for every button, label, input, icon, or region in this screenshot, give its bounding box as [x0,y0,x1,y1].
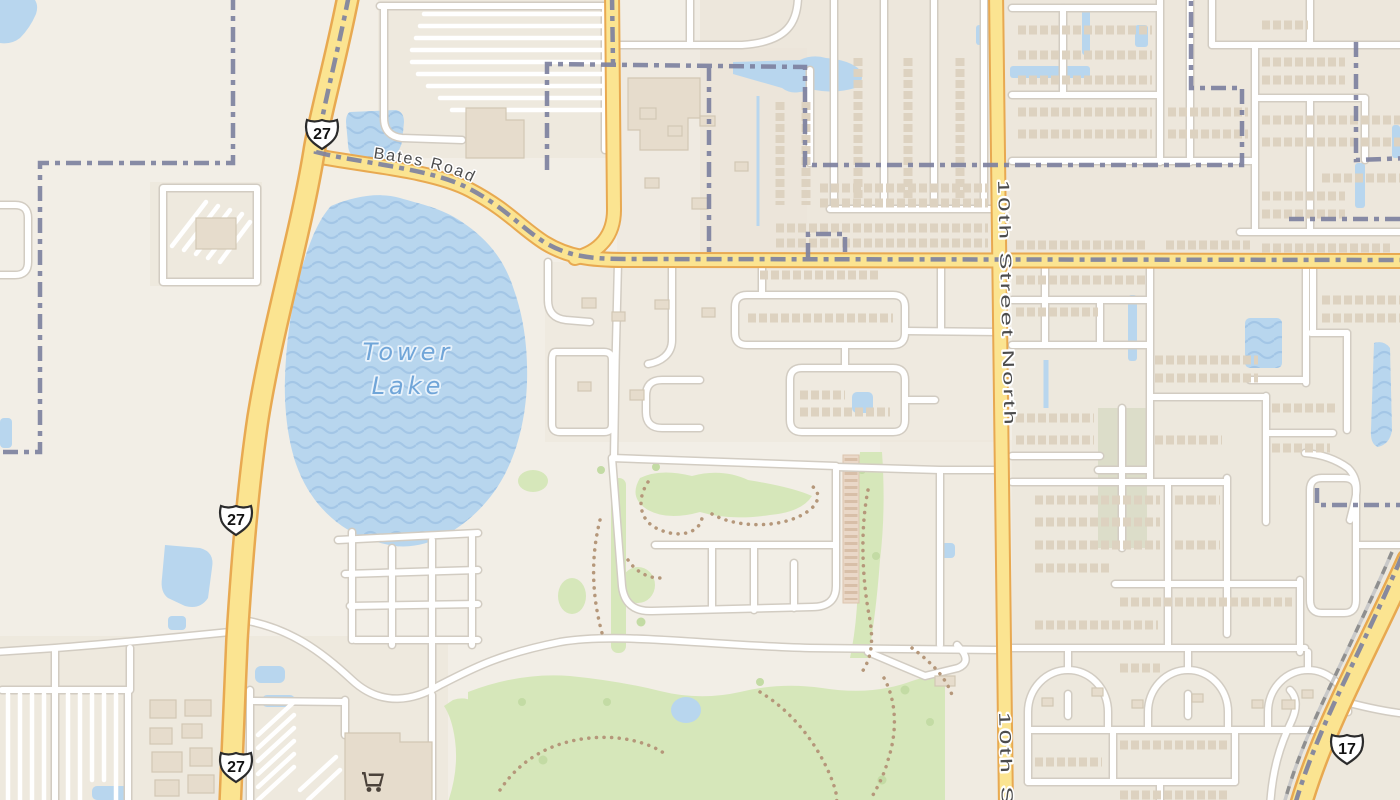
map-svg: Bates Road 10th Street North 10th Str To… [0,0,1400,800]
svg-text:27: 27 [313,126,331,143]
pond [1355,163,1365,208]
svg-text:17: 17 [1338,741,1356,758]
pond [1371,342,1392,447]
tower-lake [285,195,527,546]
pond [162,545,213,607]
svg-text:Tower: Tower [363,338,454,366]
pond [255,666,285,683]
svg-text:27: 27 [227,512,245,529]
building [196,218,236,249]
canal [1128,295,1137,361]
pond [0,418,12,448]
svg-text:27: 27 [227,759,245,776]
pond [168,616,186,630]
map-canvas[interactable]: Bates Road 10th Street North 10th Str To… [0,0,1400,800]
svg-text:Lake: Lake [372,372,445,400]
supermarket-building [345,733,432,800]
pond [671,697,701,723]
